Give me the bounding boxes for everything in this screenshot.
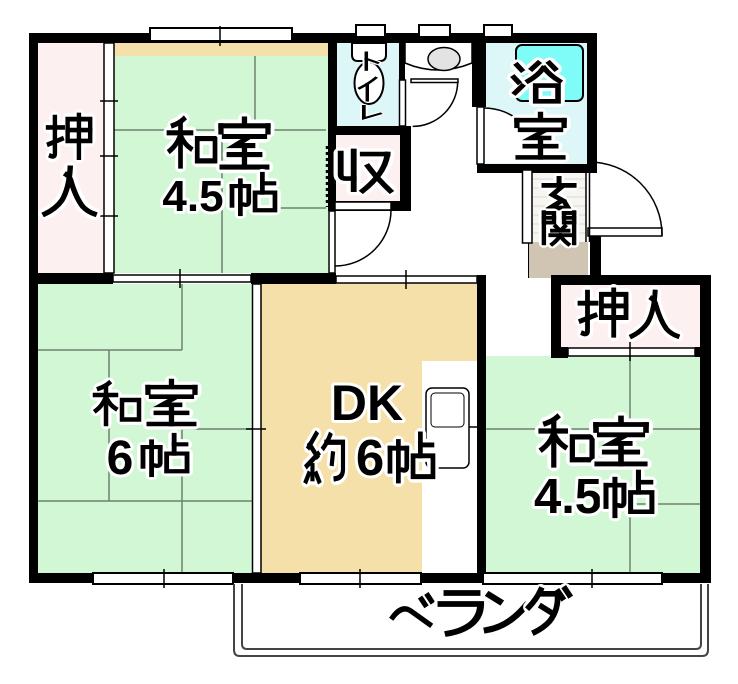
svg-text:6: 6 — [107, 432, 134, 485]
svg-text:4.5: 4.5 — [534, 470, 602, 524]
svg-text:6: 6 — [356, 429, 384, 486]
svg-text:DK: DK — [331, 375, 403, 431]
svg-text:4.5: 4.5 — [162, 172, 223, 221]
